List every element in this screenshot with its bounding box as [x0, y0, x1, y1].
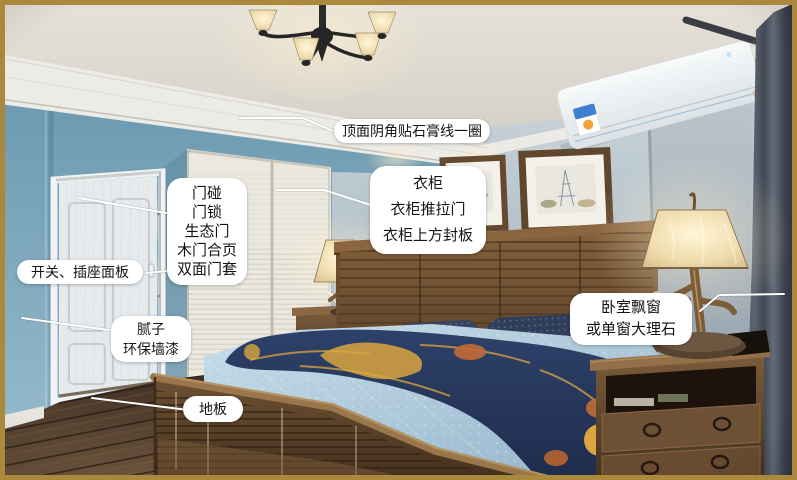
annotated-bedroom-photo: 顶面阴角贴石膏线一圈 门碰 门锁 生态门 木门合页 双面门套 开关、插座面板 腻…: [0, 0, 797, 480]
callout-text: 双面门套: [177, 260, 237, 279]
callout-text: 地板: [199, 401, 227, 417]
callout-text: 门碰: [177, 184, 237, 203]
callout-text: 衣柜推拉门: [383, 197, 473, 223]
callout-text: 或单窗大理石: [586, 319, 676, 341]
callout-text: 腻子: [123, 319, 179, 339]
callout-text: 开关、插座面板: [31, 264, 129, 280]
callout-text: 卧室飘窗: [586, 297, 676, 319]
callout-text: 木门合页: [177, 241, 237, 260]
callout-floor: 地板: [183, 396, 243, 422]
callout-text: 生态门: [177, 222, 237, 241]
callout-text: 衣柜上方封板: [383, 223, 473, 249]
callout-bay-window: 卧室飘窗 或单窗大理石: [570, 293, 692, 345]
callout-putty-paint: 腻子 环保墙漆: [111, 316, 191, 362]
callout-text: 环保墙漆: [123, 339, 179, 359]
callout-door-hardware: 门碰 门锁 生态门 木门合页 双面门套: [167, 178, 247, 285]
callout-ceiling-gypsum-line: 顶面阴角贴石膏线一圈: [334, 119, 490, 143]
callout-wardrobe: 衣柜 衣柜推拉门 衣柜上方封板: [370, 166, 486, 254]
callout-text: 衣柜: [383, 171, 473, 197]
callout-switch-panel: 开关、插座面板: [17, 260, 143, 284]
callout-text: 顶面阴角贴石膏线一圈: [342, 123, 482, 139]
callout-text: 门锁: [177, 203, 237, 222]
